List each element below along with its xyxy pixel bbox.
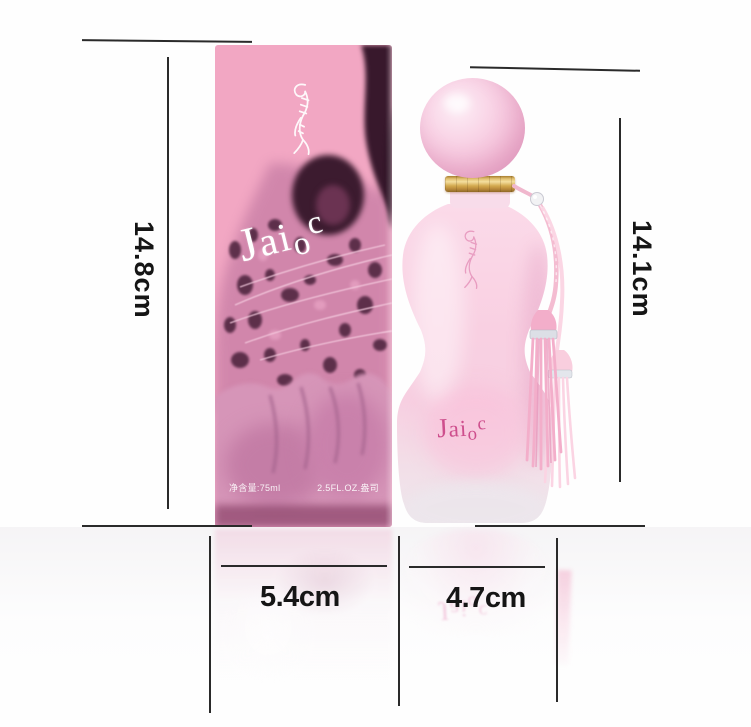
net-content-ml: 净含量:75ml bbox=[229, 481, 280, 494]
bottle-width-right-line bbox=[556, 538, 558, 702]
box-net-content-text: 净含量:75ml 2.5FL.OZ.盎司 bbox=[229, 481, 379, 494]
tassel bbox=[500, 182, 600, 502]
shared-middle-line bbox=[398, 536, 400, 706]
box-reflection bbox=[215, 529, 392, 719]
box-right-edge-highlight bbox=[385, 45, 392, 527]
box-top-extent-line bbox=[82, 39, 252, 43]
perfume-box: Jaioc 净含量:75ml 2.5FL.OZ.盎司 bbox=[215, 45, 392, 527]
bottle-height-label: 14.1cm bbox=[626, 220, 657, 318]
bottle-brand-text: Jaioc bbox=[436, 411, 488, 445]
product-dimension-image: Jaioc bbox=[0, 0, 751, 727]
bottle-bottom-extent-line bbox=[475, 525, 645, 527]
cap-highlight bbox=[444, 94, 470, 112]
cord-bead bbox=[531, 193, 544, 206]
bottle-ball-cap bbox=[420, 78, 525, 178]
box-height-label: 14.8cm bbox=[128, 221, 159, 319]
net-content-floz: 2.5FL.OZ.盎司 bbox=[317, 481, 379, 494]
box-width-left-line bbox=[209, 536, 211, 713]
bottle-height-measure-line bbox=[619, 118, 621, 482]
bottle-width-label: 4.7cm bbox=[446, 582, 526, 615]
box-bottom-extent-line bbox=[82, 525, 252, 527]
tiger-icon bbox=[281, 78, 325, 160]
box-width-measure-line bbox=[221, 565, 387, 567]
box-width-label: 5.4cm bbox=[260, 581, 340, 614]
bottle-top-extent-line bbox=[470, 66, 640, 72]
box-height-measure-line bbox=[167, 57, 169, 509]
bottle-width-measure-line bbox=[409, 566, 545, 568]
